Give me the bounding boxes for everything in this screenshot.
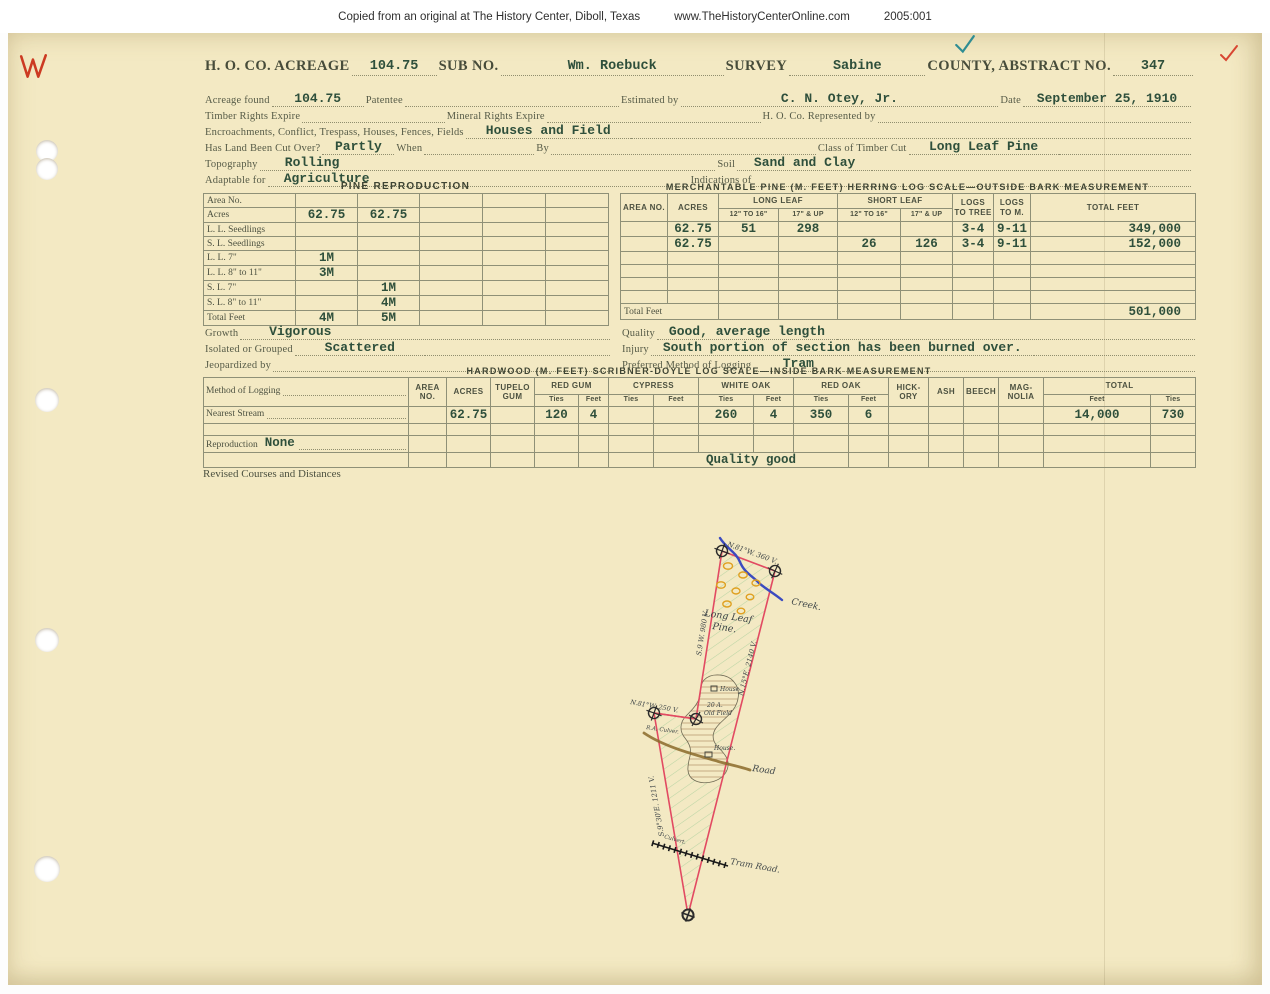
acreage-value: 104.75	[352, 60, 437, 76]
field-row-acreage: Acreage found 104.75 Patentee Estimated …	[203, 90, 1191, 107]
hardwood-title: HARDWOOD (M. FEET) SCRIBNER-DOYLE LOG SC…	[203, 366, 1195, 376]
hardwood-table: Method of Logging AREA NO. ACRES TUPELO …	[203, 377, 1196, 468]
pine-reproduction-table: Area No. Acres62.7562.75 L. L. Seedlings…	[203, 193, 609, 326]
timber-class-value: Long Leaf Pine	[909, 140, 1059, 155]
pine-acres-1: 62.75	[296, 208, 358, 223]
field-row-encroachments: Encroachments, Conflict, Trespass, House…	[203, 123, 1191, 139]
mineral-rights-label: Mineral Rights Expire	[445, 111, 547, 122]
tram-road-label: Tram Road.	[729, 857, 780, 876]
field-row-rights: Timber Rights Expire Mineral Rights Expi…	[203, 107, 1191, 123]
cut-over-label: Has Land Been Cut Over?	[203, 143, 322, 154]
table-row: S. L. 7"1M	[204, 281, 609, 296]
punch-hole	[36, 158, 58, 180]
table-row	[204, 424, 1196, 436]
represented-by-label: H. O. Co. Represented by	[761, 111, 878, 122]
encroachments-value: Houses and Field	[466, 124, 631, 139]
scanned-document-page: Copied from an original at The History C…	[0, 0, 1270, 994]
method-of-logging-label: Method of Logging	[206, 386, 283, 396]
field-row-topography: Topography Rolling Soil Sand and Clay	[203, 155, 1191, 171]
acreage-found-value: 104.75	[272, 92, 364, 107]
revised-courses-label: Revised Courses and Distances	[203, 468, 341, 480]
cut-over-value: Partly	[322, 140, 394, 155]
growth-value: Vigorous	[240, 325, 360, 340]
table-row: L. L. Seedlings	[204, 223, 609, 237]
abstract-label: COUNTY, ABSTRACT NO.	[925, 58, 1113, 75]
red-checkmark	[1218, 44, 1240, 64]
punch-hole	[35, 388, 59, 412]
isolated-value: Scattered	[295, 341, 425, 356]
field-row-isolated: Isolated or Grouped Scattered	[203, 340, 610, 356]
house-bottom-label: House.	[713, 745, 735, 752]
scan-accession-number: 2005:001	[884, 11, 932, 23]
old-field-label: Old Field	[704, 710, 732, 717]
field-row-growth: Growth Vigorous	[203, 324, 610, 340]
topography-label: Topography	[203, 159, 260, 170]
quality-label: Quality	[620, 328, 657, 339]
pine-acres-2: 62.75	[358, 208, 420, 223]
table-row: 62.75 51 298 3-4 9-11 349,000	[621, 222, 1196, 237]
table-row	[621, 291, 1196, 304]
creek-label: Creek.	[790, 597, 822, 613]
table-row	[621, 252, 1196, 265]
field-row-cutover: Has Land Been Cut Over? Partly When By C…	[203, 139, 1191, 155]
merchantable-pine-title: MERCHANTABLE PINE (M. FEET) HERRING LOG …	[620, 182, 1195, 192]
table-row: L. L. 7"1M	[204, 251, 609, 266]
road-label: Road	[751, 764, 777, 777]
merchantable-total-value: 501,000	[1031, 304, 1196, 320]
table-header-row: Method of Logging AREA NO. ACRES TUPELO …	[204, 378, 1196, 395]
date-label: Date	[998, 95, 1023, 106]
survey-name-value: Wm. Roebuck	[501, 60, 724, 76]
scan-attribution-strip: Copied from an original at The History C…	[0, 0, 1270, 33]
county-value: Sabine	[789, 60, 925, 76]
punch-hole	[35, 628, 59, 652]
table-row: 62.75 26 126 3-4 9-11 152,000	[621, 237, 1196, 252]
encroachments-label: Encroachments, Conflict, Trespass, House…	[203, 127, 466, 138]
scan-source-url: www.TheHistoryCenterOnline.com	[674, 11, 850, 23]
hardwood-quality-note: Quality good	[654, 453, 849, 468]
date-value: September 25, 1910	[1023, 92, 1191, 107]
isolated-label: Isolated or Grouped	[203, 344, 295, 355]
hardwood-reproduction-row: ReproductionNone	[204, 436, 1196, 453]
survey-plat-map: N.81°W. 360 V. S.9 W. 980 V. N.15°E. 214…	[600, 528, 880, 938]
form-title-line: H. O. CO. ACREAGE 104.75 SUB NO. Wm. Roe…	[203, 54, 1193, 76]
field-row-quality: Quality Good, average length	[620, 324, 1195, 340]
table-row: Acres62.7562.75	[204, 208, 609, 223]
table-row: S. L. Seedlings	[204, 237, 609, 251]
table-total-row: Total Feet 501,000	[621, 304, 1196, 320]
injury-label: Injury	[620, 344, 651, 355]
co-acreage-label: H. O. CO. ACREAGE	[203, 58, 352, 75]
growth-label: Growth	[203, 328, 240, 339]
timber-rights-label: Timber Rights Expire	[203, 111, 302, 122]
table-row	[621, 278, 1196, 291]
merchantable-pine-table: AREA NO. ACRES LONG LEAF SHORT LEAF LOGS…	[620, 193, 1196, 320]
table-row: S. L. 8" to 11"4M	[204, 296, 609, 311]
patentee-label: Patentee	[364, 95, 405, 106]
survey-label: SURVEY	[724, 58, 790, 75]
table-row: L. L. 8" to 11"3M	[204, 266, 609, 281]
injury-value: South portion of section has been burned…	[651, 341, 1034, 356]
punch-hole	[34, 856, 60, 882]
house-top-label: House	[719, 686, 740, 693]
sub-no-label: SUB NO.	[437, 58, 501, 75]
topography-value: Rolling	[260, 156, 365, 171]
acreage-found-label: Acreage found	[203, 95, 272, 106]
pine-reproduction-title: PINE REPRODUCTION	[203, 181, 608, 192]
abstract-no-value: 347	[1113, 60, 1193, 76]
quality-value: Good, average length	[657, 325, 837, 340]
teal-checkmark	[954, 34, 976, 56]
bearing-lower-left-label: S.9°30'E. 1211 V.	[647, 775, 666, 837]
table-row: Area No.	[204, 194, 609, 208]
table-row	[621, 265, 1196, 278]
estimated-by-label: Estimated by	[619, 95, 681, 106]
hardwood-stream-row: Nearest Stream 62.75 120 4 260 4 350 6 1…	[204, 407, 1196, 424]
scan-source-text: Copied from an original at The History C…	[338, 11, 640, 23]
field-row-injury: Injury South portion of section has been…	[620, 340, 1195, 356]
nearest-stream-label: Nearest Stream	[206, 409, 267, 419]
reproduction-value: None	[261, 436, 299, 450]
when-label: When	[394, 143, 424, 154]
table-header-row: AREA NO. ACRES LONG LEAF SHORT LEAF LOGS…	[621, 194, 1196, 209]
old-field-acres-label: 20 A.	[706, 702, 723, 709]
hardwood-quality-row: Quality good	[204, 453, 1196, 468]
estimated-by-value: C. N. Otey, Jr.	[681, 92, 999, 107]
timber-class-label: Class of Timber Cut	[816, 143, 909, 154]
soil-label: Soil	[715, 159, 737, 170]
reproduction-label: Reproduction	[206, 440, 261, 450]
by-label: By	[534, 143, 551, 154]
red-pen-w-mark	[18, 50, 50, 82]
soil-value: Sand and Clay	[737, 156, 872, 171]
